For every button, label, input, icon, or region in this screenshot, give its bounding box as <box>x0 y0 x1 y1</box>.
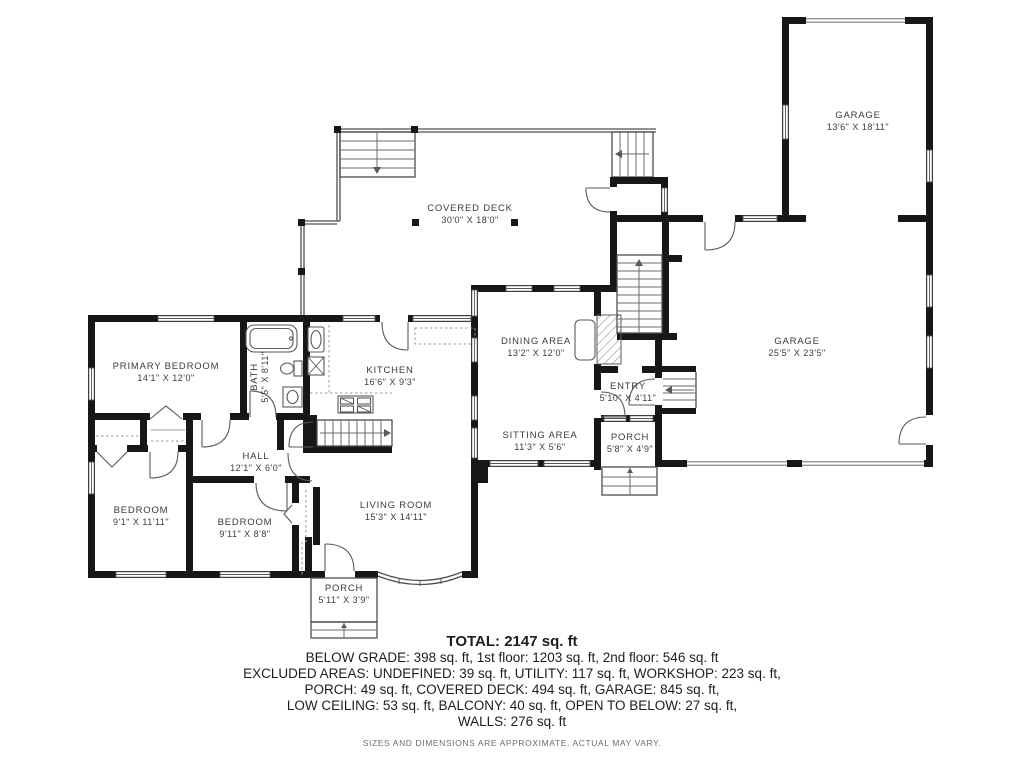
stairs-mid-level <box>617 255 662 333</box>
room-dims-covered-deck: 30'0" X 18'0" <box>441 215 498 225</box>
toilet-tank <box>294 361 302 376</box>
room-label-front-porch: PORCH <box>325 583 363 594</box>
walls <box>88 17 933 578</box>
room-dims-entry: 5'10" X 4'11" <box>600 393 657 403</box>
room-dims-primary-bedroom: 14'1" X 12'0" <box>137 373 194 383</box>
door-bedroom-middle <box>256 483 287 511</box>
room-dims-hall: 12'1" X 6'0" <box>230 463 282 473</box>
window <box>343 316 375 321</box>
room-dims-bedroom-middle: 9'11" X 8'8" <box>219 529 270 539</box>
room-dims-sitting-area: 11'3" X 5'6" <box>514 442 565 452</box>
window <box>472 428 477 458</box>
stairs-down-arrow-icon <box>373 167 381 174</box>
garage-door <box>687 460 787 467</box>
room-label-bedroom-middle: BEDROOM <box>218 517 273 528</box>
room-dims-entry-porch: 5'8" X 4'9" <box>607 444 653 454</box>
window <box>490 461 538 466</box>
floor-plan-page: GARAGE 13'6" X 18'11" COVERED DECK 30'0"… <box>0 0 1024 768</box>
door-primary-bedroom <box>202 420 230 447</box>
door-breezeway-garage <box>705 222 735 250</box>
window <box>927 336 932 368</box>
room-label-sitting-area: SITTING AREA <box>502 430 577 441</box>
door-garage-side <box>899 417 926 444</box>
garage-door <box>806 17 905 24</box>
room-dims-kitchen: 16'6" X 9'3" <box>364 377 416 387</box>
room-label-entry-porch: PORCH <box>611 432 649 443</box>
door-kitchen-deck <box>382 322 408 350</box>
deck-post <box>511 219 518 226</box>
room-dims-garage-lower: 25'5" X 23'5" <box>768 348 825 358</box>
room-dims-front-porch: 5'11" X 3'9" <box>318 595 369 605</box>
steps-up-arrow-icon <box>627 468 633 473</box>
window <box>116 572 166 577</box>
room-dims-dining-area: 13'2" X 12'0" <box>507 348 564 358</box>
room-label-bath: BATH <box>249 363 260 391</box>
deck-post <box>412 219 419 226</box>
window <box>413 316 471 321</box>
door-vestibule-deck <box>586 188 610 212</box>
window <box>472 396 477 420</box>
window <box>783 105 788 139</box>
door-bedroom-left <box>150 452 178 478</box>
room-labels: GARAGE 13'6" X 18'11" COVERED DECK 30'0"… <box>113 110 889 605</box>
deck-post <box>298 268 305 275</box>
deck-post <box>298 219 305 226</box>
window <box>927 275 932 307</box>
excluded-areas-text-2: PORCH: 49 sq. ft, COVERED DECK: 494 sq. … <box>0 682 1024 698</box>
deck-post <box>411 126 418 133</box>
room-label-hall: HALL <box>243 451 270 462</box>
deck-stairs-left <box>340 132 415 177</box>
stairs-right-arrow-icon <box>384 429 391 437</box>
excluded-areas-text-3: LOW CEILING: 53 sq. ft, BALCONY: 40 sq. … <box>0 698 1024 714</box>
room-label-bedroom-left: BEDROOM <box>114 505 169 516</box>
room-label-kitchen: KITCHEN <box>366 365 413 376</box>
room-label-living-room: LIVING ROOM <box>360 500 432 511</box>
room-label-dining-area: DINING AREA <box>501 336 571 347</box>
window <box>544 461 590 466</box>
window <box>554 286 580 291</box>
window <box>220 572 270 577</box>
window <box>506 286 532 291</box>
kitchen-fixtures <box>308 327 373 413</box>
deck-post <box>334 126 341 133</box>
window <box>472 338 477 362</box>
room-label-primary-bedroom: PRIMARY BEDROOM <box>113 361 220 372</box>
window <box>927 150 932 182</box>
room-label-entry: ENTRY <box>610 381 646 392</box>
area-summary: TOTAL: 2147 sq. ft BELOW GRADE: 398 sq. … <box>0 633 1024 748</box>
window <box>89 368 94 400</box>
window <box>662 188 667 212</box>
window <box>89 462 94 494</box>
window <box>158 316 214 321</box>
disclaimer-text: SIZES AND DIMENSIONS ARE APPROXIMATE. AC… <box>0 738 1024 748</box>
garage-door <box>802 460 924 467</box>
steps-entry-porch <box>602 467 657 495</box>
bifold-bedroom-middle-closet <box>284 505 292 523</box>
stairs-left-arrow-icon <box>615 150 622 158</box>
window <box>630 416 653 421</box>
floor-plan-svg: GARAGE 13'6" X 18'11" COVERED DECK 30'0"… <box>0 0 1024 640</box>
room-label-garage-lower: GARAGE <box>774 336 819 347</box>
doors <box>97 188 926 571</box>
window <box>743 216 777 221</box>
stove <box>338 396 373 413</box>
bifold-bedroom-left-closet <box>97 452 127 467</box>
windows <box>89 17 932 577</box>
fireplace <box>575 315 621 364</box>
toilet-bowl <box>281 363 294 374</box>
room-label-garage-upper: GARAGE <box>835 110 880 121</box>
excluded-areas-text-1: EXCLUDED AREAS: UNDEFINED: 39 sq. ft, UT… <box>0 666 1024 682</box>
room-dims-bedroom-left: 9'1" X 11'11" <box>113 517 169 527</box>
steps-up-arrow-icon <box>341 623 347 628</box>
room-dims-garage-upper: 13'6" X 18'11" <box>827 122 889 132</box>
total-area-text: TOTAL: 2147 sq. ft <box>0 633 1024 650</box>
stairs-basement <box>317 420 392 446</box>
stairs-garage <box>663 372 696 408</box>
walls-area-text: WALLS: 276 sq. ft <box>0 714 1024 730</box>
deck-stairs-right <box>612 132 653 177</box>
room-label-covered-deck: COVERED DECK <box>427 203 513 214</box>
room-dims-bath: 5'5" X 8'11" <box>260 351 270 402</box>
kitchen-sink <box>311 331 321 349</box>
door-living-porch <box>325 544 354 571</box>
window <box>472 290 477 316</box>
bath-sink <box>287 391 298 404</box>
room-dims-living-room: 15'3" X 14'11" <box>365 512 427 522</box>
floors-area-text: BELOW GRADE: 398 sq. ft, 1st floor: 1203… <box>0 650 1024 666</box>
